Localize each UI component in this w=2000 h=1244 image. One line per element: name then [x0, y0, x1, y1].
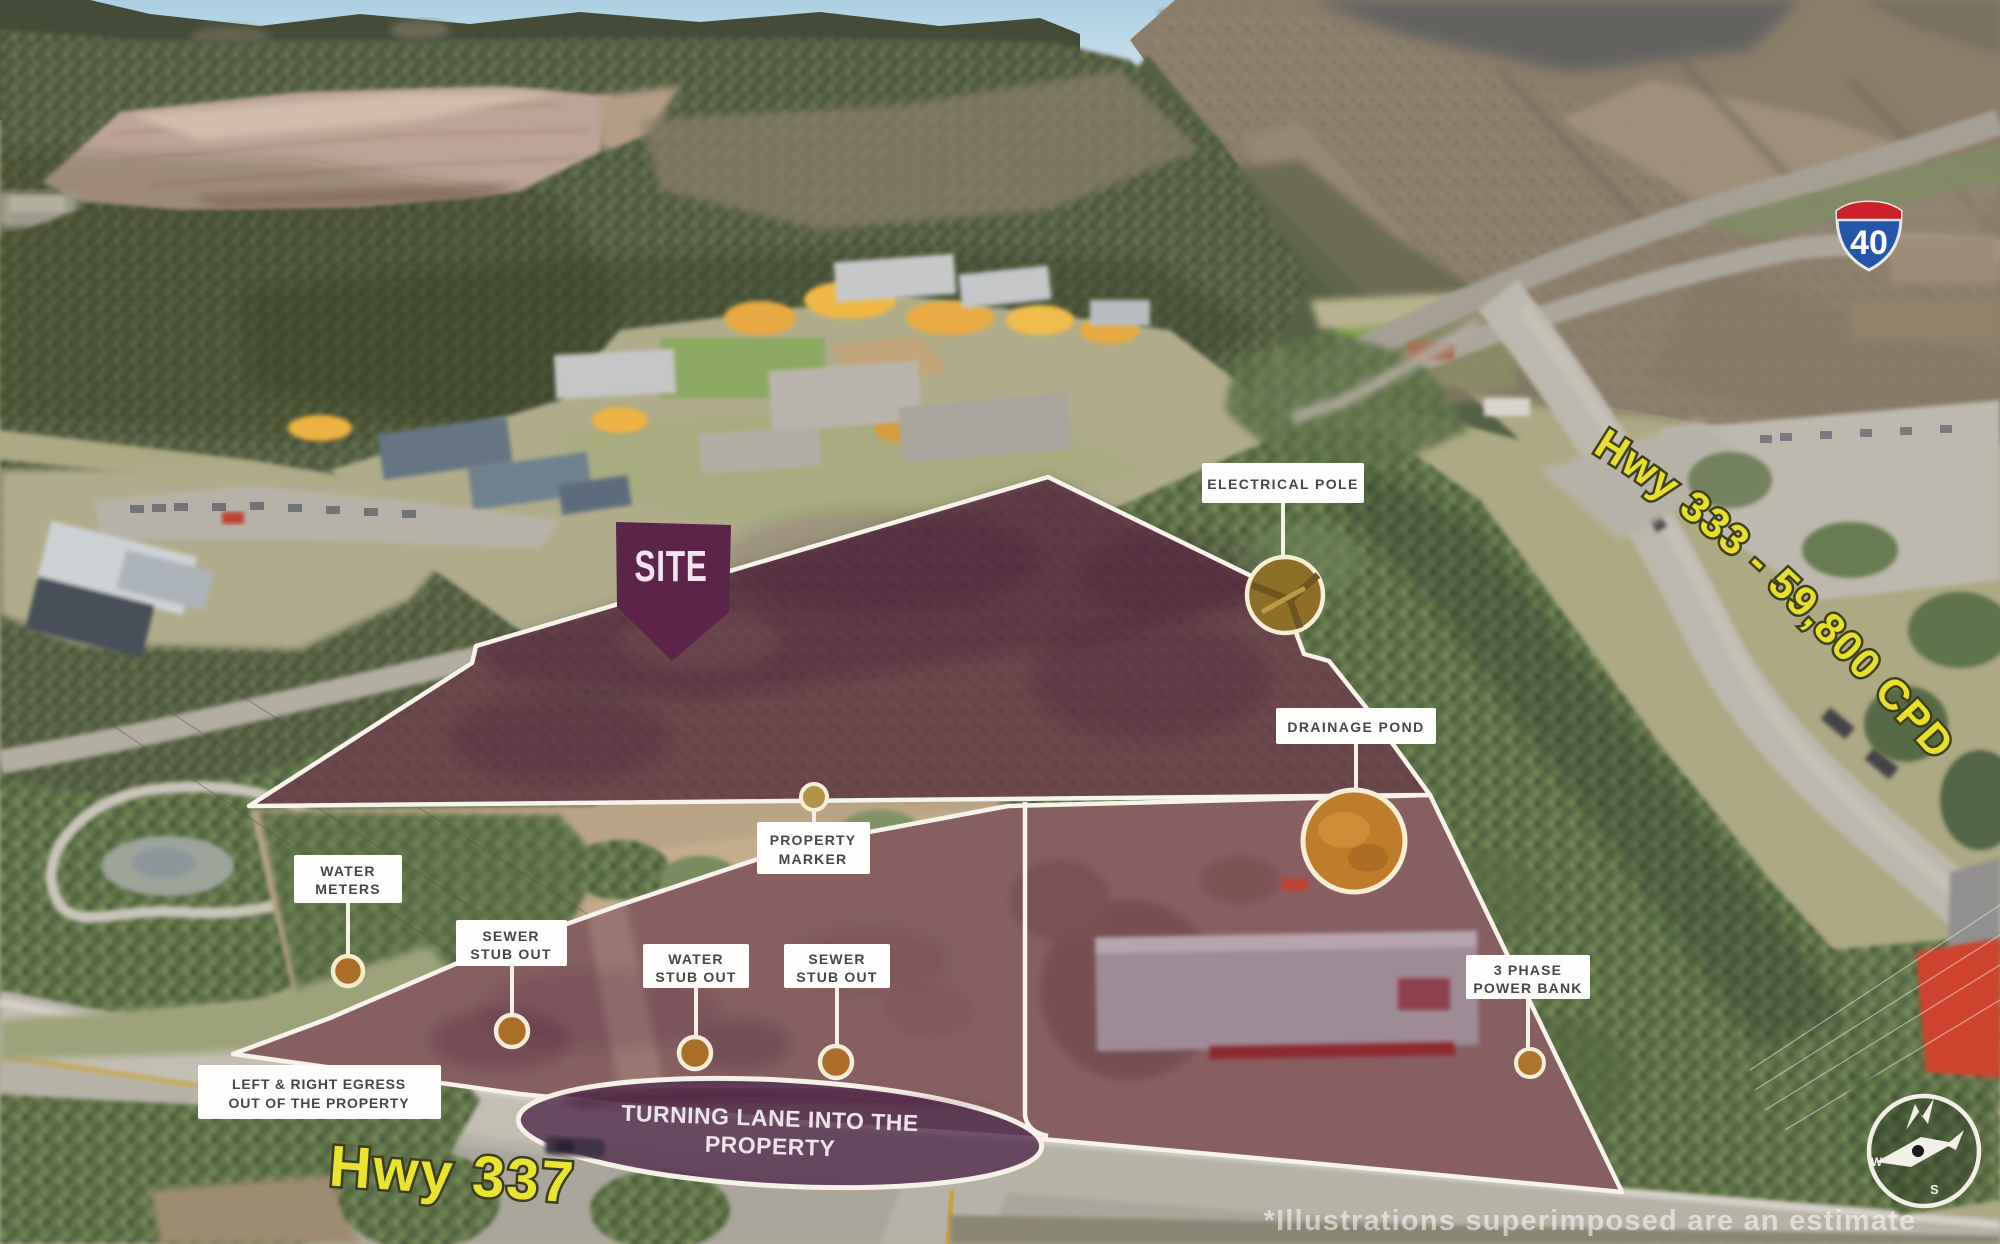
svg-text:METERS: METERS	[315, 881, 381, 897]
svg-text:PROPERTY: PROPERTY	[704, 1131, 835, 1162]
svg-text:OUT OF THE PROPERTY: OUT OF THE PROPERTY	[229, 1095, 410, 1111]
svg-text:MARKER: MARKER	[779, 851, 848, 867]
svg-text:40: 40	[1850, 224, 1888, 262]
svg-text:S: S	[1930, 1182, 1939, 1197]
svg-text:STUB OUT: STUB OUT	[796, 969, 877, 985]
svg-text:ELECTRICAL POLE: ELECTRICAL POLE	[1207, 476, 1358, 492]
svg-text:POWER BANK: POWER BANK	[1473, 980, 1582, 996]
svg-text:DRAINAGE POND: DRAINAGE POND	[1287, 719, 1424, 735]
svg-text:SEWER: SEWER	[808, 951, 865, 967]
svg-text:SEWER: SEWER	[482, 928, 539, 944]
svg-text:LEFT & RIGHT EGRESS: LEFT & RIGHT EGRESS	[232, 1076, 406, 1092]
svg-text:*Illustrations superimposed ar: *Illustrations superimposed are an estim…	[1264, 1205, 1917, 1237]
svg-text:PROPERTY: PROPERTY	[770, 832, 857, 848]
svg-text:STUB OUT: STUB OUT	[655, 969, 736, 985]
svg-text:WATER: WATER	[320, 863, 376, 879]
svg-text:W: W	[1871, 1155, 1883, 1169]
svg-text:WATER: WATER	[668, 951, 724, 967]
svg-text:STUB OUT: STUB OUT	[470, 946, 551, 962]
svg-text:3 PHASE: 3 PHASE	[1494, 962, 1562, 978]
svg-text:SITE: SITE	[634, 542, 707, 591]
